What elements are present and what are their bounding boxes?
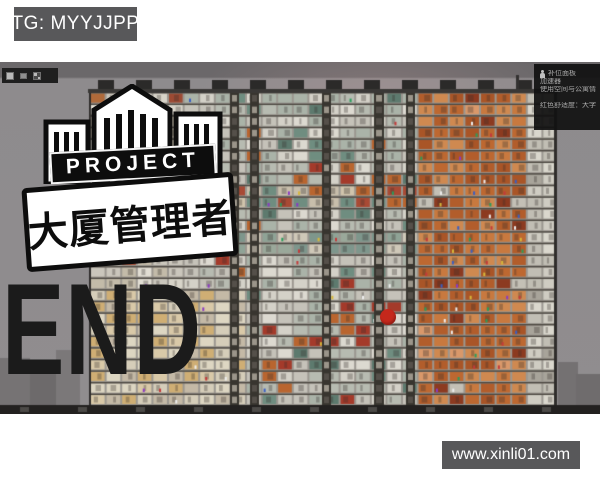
logo-title-text: 大厦管理者 bbox=[26, 185, 234, 259]
game-tooltip-panel: 补位面板 加速器 使用空间与公寓情况 红色舒适度：大字体 bbox=[534, 64, 600, 130]
tooltip-line-2: 加速器 bbox=[540, 78, 596, 86]
tg-watermark-text: TG: MYYJJPP bbox=[12, 13, 140, 35]
window-icon[interactable] bbox=[6, 72, 14, 80]
resize-icon[interactable] bbox=[20, 73, 27, 79]
person-icon bbox=[540, 70, 545, 78]
alert-notification-dot[interactable] bbox=[380, 309, 396, 325]
tg-watermark-badge: TG: MYYJJPP bbox=[14, 7, 137, 41]
game-mini-toolbar bbox=[2, 68, 58, 83]
grid-icon[interactable] bbox=[33, 72, 41, 80]
tooltip-line-3: 使用空间与公寓情况 bbox=[540, 86, 596, 94]
tooltip-line-1: 补位面板 bbox=[548, 70, 576, 78]
tooltip-line-4: 红色舒适度：大字体 bbox=[540, 102, 596, 110]
site-watermark-badge: www.xinli01.com bbox=[442, 441, 580, 469]
game-logo: PROJECT 大厦管理者 bbox=[24, 84, 240, 276]
end-text: END bbox=[2, 268, 202, 392]
site-watermark-text: www.xinli01.com bbox=[452, 446, 570, 464]
